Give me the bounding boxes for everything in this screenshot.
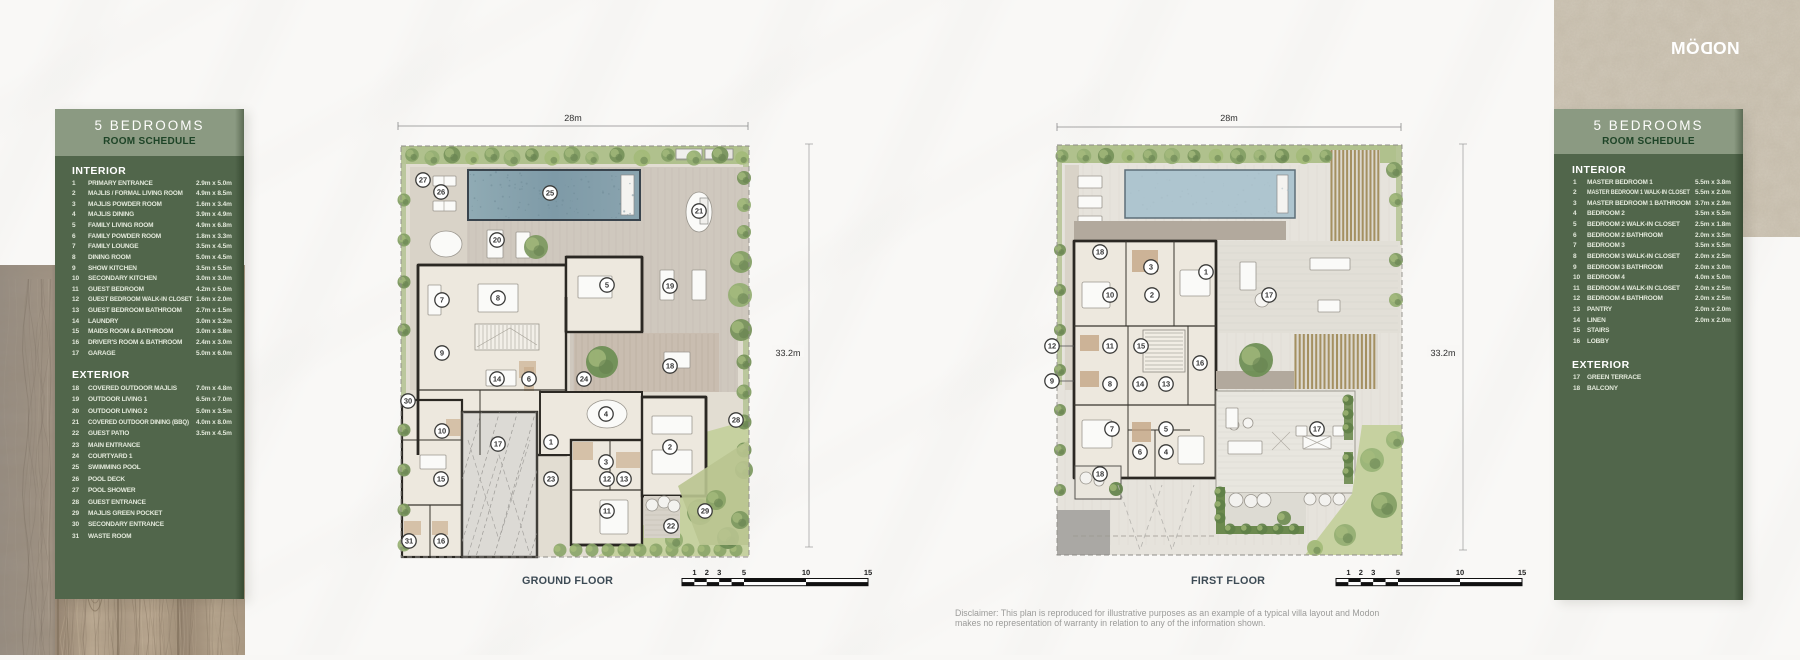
svg-text:3: 3	[604, 458, 608, 467]
svg-text:13: 13	[620, 475, 628, 484]
svg-text:6: 6	[527, 375, 531, 384]
svg-text:2: 2	[705, 568, 709, 577]
svg-text:14: 14	[1136, 380, 1145, 389]
svg-text:8: 8	[1108, 380, 1112, 389]
svg-text:33.2m: 33.2m	[775, 348, 800, 358]
svg-text:5: 5	[742, 568, 746, 577]
svg-text:18: 18	[666, 362, 674, 371]
svg-text:22: 22	[667, 522, 675, 531]
svg-text:11: 11	[1106, 342, 1114, 351]
svg-text:28m: 28m	[564, 113, 582, 123]
svg-text:20: 20	[493, 236, 501, 245]
svg-text:27: 27	[419, 176, 427, 185]
svg-text:9: 9	[1050, 377, 1054, 386]
svg-text:5: 5	[1164, 425, 1168, 434]
svg-text:33.2m: 33.2m	[1430, 348, 1455, 358]
svg-text:14: 14	[493, 375, 502, 384]
svg-text:17: 17	[1265, 291, 1273, 300]
svg-text:6: 6	[1138, 448, 1142, 457]
svg-text:2: 2	[668, 443, 672, 452]
svg-text:7: 7	[440, 296, 444, 305]
svg-text:15: 15	[437, 475, 445, 484]
svg-text:19: 19	[666, 282, 674, 291]
svg-text:10: 10	[1106, 291, 1114, 300]
svg-text:15: 15	[1518, 568, 1526, 577]
svg-text:18: 18	[1096, 470, 1104, 479]
svg-text:16: 16	[437, 537, 445, 546]
svg-text:10: 10	[1456, 568, 1464, 577]
svg-text:31: 31	[405, 537, 413, 546]
svg-text:5: 5	[1396, 568, 1400, 577]
svg-text:1: 1	[1204, 268, 1208, 277]
svg-text:2: 2	[1150, 291, 1154, 300]
svg-text:7: 7	[1110, 425, 1114, 434]
svg-text:18: 18	[1096, 248, 1104, 257]
svg-text:21: 21	[695, 207, 703, 216]
svg-text:5: 5	[605, 281, 609, 290]
svg-text:3: 3	[1149, 263, 1153, 272]
svg-text:9: 9	[440, 349, 444, 358]
svg-text:1: 1	[692, 568, 696, 577]
svg-text:11: 11	[603, 507, 611, 516]
svg-text:1: 1	[549, 438, 553, 447]
svg-text:16: 16	[1196, 359, 1204, 368]
svg-text:12: 12	[1048, 342, 1056, 351]
svg-text:1: 1	[1346, 568, 1350, 577]
svg-text:26: 26	[437, 188, 445, 197]
svg-text:29: 29	[701, 507, 709, 516]
svg-text:28m: 28m	[1220, 113, 1238, 123]
svg-text:15: 15	[864, 568, 872, 577]
svg-text:10: 10	[438, 427, 446, 436]
svg-text:8: 8	[496, 294, 500, 303]
svg-text:2: 2	[1359, 568, 1363, 577]
svg-text:30: 30	[404, 397, 412, 406]
svg-text:3: 3	[717, 568, 721, 577]
svg-text:25: 25	[546, 189, 554, 198]
svg-text:17: 17	[494, 440, 502, 449]
svg-text:28: 28	[732, 416, 740, 425]
svg-text:23: 23	[547, 475, 555, 484]
svg-text:12: 12	[603, 475, 611, 484]
svg-text:15: 15	[1137, 342, 1145, 351]
svg-text:10: 10	[802, 568, 810, 577]
svg-text:17: 17	[1313, 425, 1321, 434]
svg-text:3: 3	[1371, 568, 1375, 577]
svg-text:24: 24	[580, 375, 589, 384]
svg-text:13: 13	[1162, 380, 1170, 389]
